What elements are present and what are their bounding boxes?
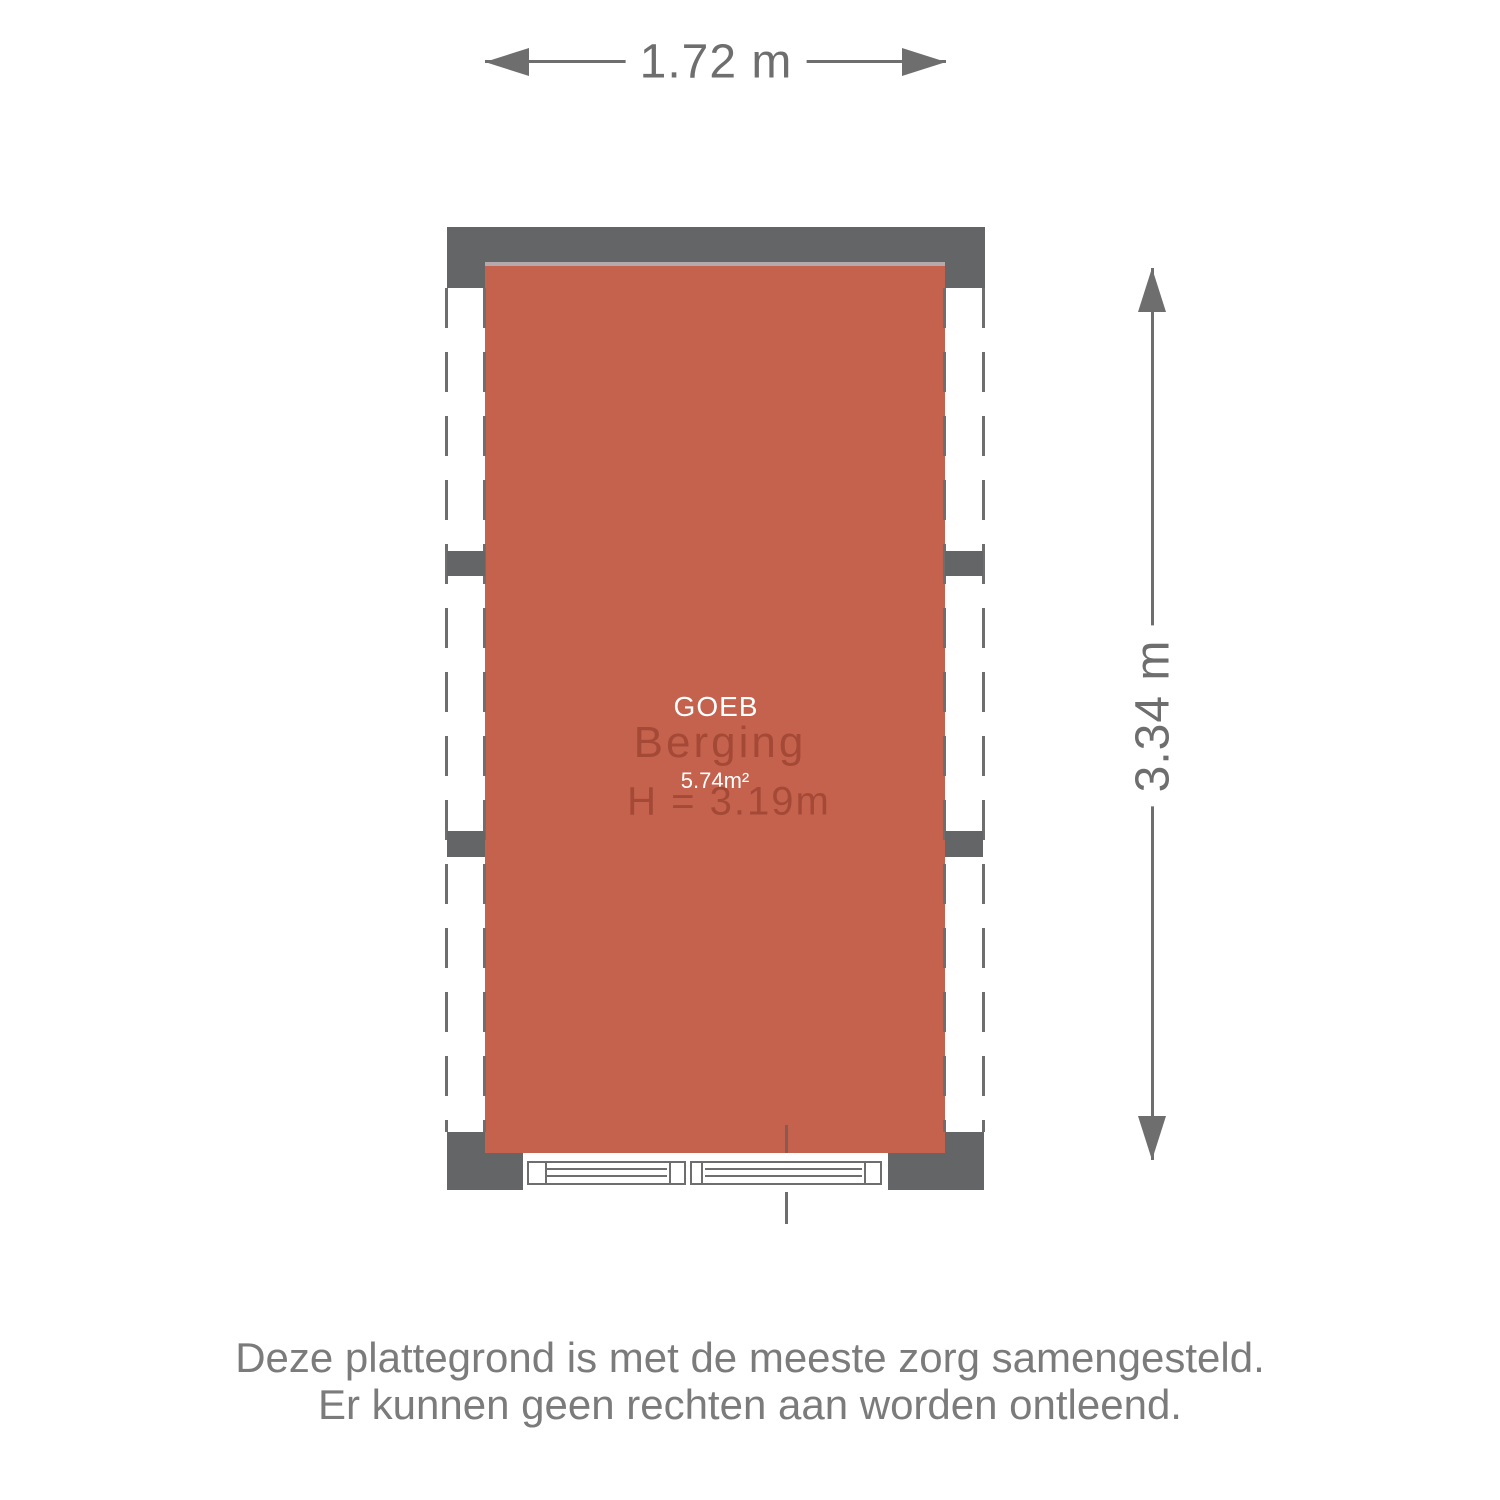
- left-wall-dashed-outer: [445, 288, 448, 1132]
- room-height-label: H = 3.19m: [627, 780, 831, 825]
- door-pane-left-line-1: [547, 1168, 667, 1170]
- room-name-label: Berging: [634, 718, 807, 768]
- floorplan-canvas: 1.72 m 3.34 m GOEB Berging 5.74m² H = 3.…: [0, 0, 1500, 1500]
- door-divider-right: [864, 1163, 866, 1183]
- arrow-right-icon: [902, 48, 946, 76]
- right-wall-segment-lower: [945, 831, 983, 857]
- door-pane-left-line-2: [547, 1175, 667, 1177]
- left-wall-dashed-inner: [483, 288, 486, 1132]
- room-top-edge-line: [485, 262, 945, 266]
- right-wall-dashed-outer: [982, 288, 985, 1132]
- door-stile-right: [690, 1161, 703, 1185]
- disclaimer-line-1: Deze plattegrond is met de meeste zorg s…: [0, 1334, 1500, 1381]
- width-dimension-label: 1.72 m: [626, 35, 807, 90]
- door-stile-left: [669, 1161, 686, 1185]
- door-center-marker-top: [785, 1125, 788, 1153]
- right-wall-dashed-inner: [943, 288, 946, 1132]
- arrow-down-icon: [1138, 1116, 1166, 1160]
- door-pane-right-line-2: [705, 1175, 862, 1177]
- arrow-up-icon: [1138, 268, 1166, 312]
- disclaimer-line-2: Er kunnen geen rechten aan worden ontlee…: [0, 1381, 1500, 1428]
- left-wall-segment-upper: [447, 551, 485, 576]
- disclaimer: Deze plattegrond is met de meeste zorg s…: [0, 1334, 1500, 1428]
- arrow-left-icon: [485, 48, 529, 76]
- door-pane-right-line-1: [705, 1168, 862, 1170]
- right-wall-segment-upper: [945, 551, 983, 576]
- height-dimension-label: 3.34 m: [1126, 626, 1181, 807]
- sliding-door-frame: [527, 1161, 882, 1185]
- door-center-marker-bottom: [785, 1192, 788, 1224]
- left-wall-segment-lower: [447, 831, 485, 857]
- door-divider-left: [545, 1163, 547, 1183]
